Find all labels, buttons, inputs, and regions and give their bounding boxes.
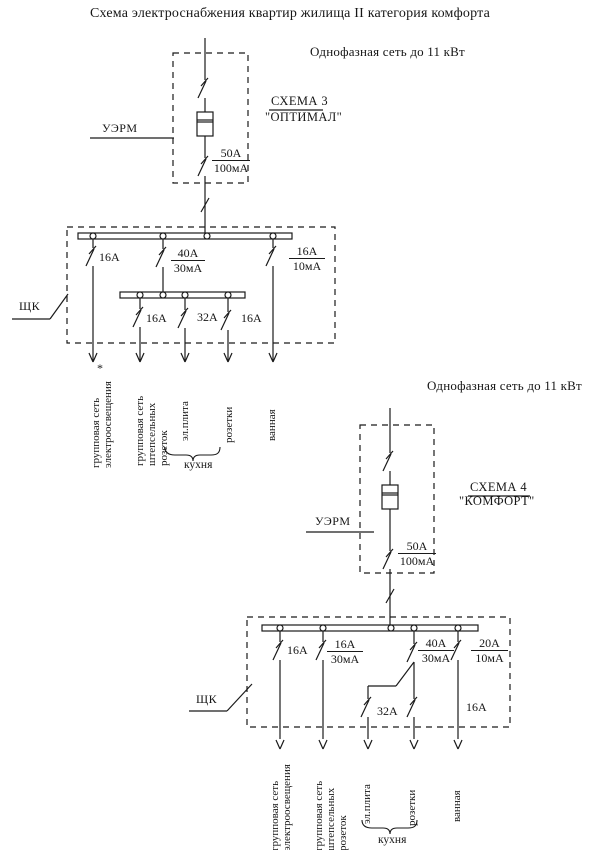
scheme2-output-sockets-label: групповая сеть штепсельных розеток: [313, 763, 349, 850]
schematic-page: Схема электроснабжения квартир жилища II…: [0, 0, 604, 850]
scheme2-lighting-breaker-label: 16A: [287, 644, 308, 657]
scheme1-diff-breaker-rating: 40A 30мА: [171, 247, 205, 274]
scheme1-input-leakage: 100мА: [212, 161, 250, 174]
scheme2-bath-breaker-label: 16A: [466, 701, 487, 714]
scheme1-kitchen-group-label: кухня: [184, 459, 212, 472]
scheme2-kitchen-group-label: кухня: [378, 834, 406, 847]
scheme2-bath-breaker-rating: 20A 10мА: [471, 637, 508, 664]
scheme1-uerm-label: УЭРМ: [102, 122, 138, 135]
scheme2-variant: "КОМФОРТ": [459, 495, 535, 508]
scheme1-input-breaker-rating: 50A 100мА: [212, 147, 250, 174]
scheme2-panel-label: ЩК: [196, 693, 217, 706]
scheme2-branch-lighting: [273, 631, 284, 749]
scheme2-feed-wire: [382, 408, 398, 625]
scheme2-input-breaker-rating: 50A 100мА: [398, 540, 436, 567]
scheme1-bath-leakage: 10мА: [289, 259, 325, 272]
scheme1-sub-bus: [120, 292, 245, 298]
scheme1-lighting-breaker-label: 16A: [99, 251, 120, 264]
scheme1-output-kitchen-sockets-label: розетки: [223, 397, 235, 443]
scheme1-sockets-breaker-label: 16A: [146, 312, 167, 325]
scheme1-kitchen-sockets-breaker-label: 16A: [241, 312, 262, 325]
scheme2-diff-current: 40A: [418, 637, 454, 651]
scheme2-branch-diff: [361, 631, 418, 749]
scheme2-network-label: Однофазная сеть до 11 кВт: [427, 379, 582, 392]
scheme2-output-lighting-label: групповая сеть электроосвещения: [269, 753, 293, 850]
scheme1-diff-leakage: 30мА: [171, 261, 205, 274]
diagram-title: Схема электроснабжения квартир жилища II…: [0, 7, 580, 20]
scheme1-panel-label: ЩК: [19, 300, 40, 313]
scheme2-sockets-current: 16A: [327, 638, 363, 652]
scheme2-main-bus: [262, 625, 478, 631]
scheme1-main-bus: [78, 233, 292, 239]
scheme2-branch-sockets: [316, 631, 327, 749]
scheme1-output-lighting-label: групповая сеть электроосвещения: [90, 368, 114, 468]
scheme2-bath-current: 20A: [471, 637, 508, 651]
scheme1-stove-breaker-label: 32A: [197, 311, 218, 324]
scheme2-output-kitchen-sockets-label: розетки: [406, 780, 418, 826]
scheme2-output-bath-label: ванная: [451, 780, 463, 822]
scheme2-name: СХЕМА 4: [470, 481, 527, 494]
scheme1-subbranch-sockets: [133, 298, 144, 362]
scheme1-bath-current: 16A: [289, 245, 325, 259]
scheme1-output-sockets-label: групповая сеть штепсельных розеток: [134, 386, 170, 466]
scheme2-input-current: 50A: [398, 540, 436, 554]
scheme1-name: СХЕМА 3: [271, 95, 328, 108]
scheme2-meter-icon: [382, 485, 398, 509]
scheme1-network-label: Однофазная сеть до 11 кВт: [310, 45, 465, 58]
scheme1-subbranch-stove: [178, 298, 189, 362]
scheme2-input-leakage: 100мА: [398, 554, 436, 567]
scheme1-diff-current: 40A: [171, 247, 205, 261]
scheme1-output-stove-label: эл.плита: [179, 393, 191, 441]
scheme1-subbranch-kitchen-sockets: [221, 298, 232, 362]
scheme2-output-stove-label: эл.плита: [361, 774, 373, 824]
scheme1-variant: "ОПТИМАЛ": [265, 111, 342, 124]
scheme2-stove-breaker-label: 32A: [377, 705, 398, 718]
scheme2-sockets-leakage: 30мА: [327, 652, 363, 665]
scheme2-diff-leakage: 30мА: [418, 651, 454, 664]
scheme1-bath-breaker-rating: 16A 10мА: [289, 245, 325, 272]
scheme2-bath-leakage: 10мА: [471, 651, 508, 664]
scheme2-uerm-label: УЭРМ: [315, 515, 351, 528]
scheme1-output-bath-label: ванная: [266, 399, 278, 441]
scheme1-branch-diff: [156, 239, 166, 292]
scheme2-sockets-breaker-rating: 16A 30мА: [327, 638, 363, 665]
scheme1-meter-icon: [197, 112, 213, 136]
scheme1-input-current: 50A: [212, 147, 250, 161]
scheme1-feed-wire: [197, 38, 213, 233]
scheme2-diff-breaker-rating: 40A 30мА: [418, 637, 454, 664]
